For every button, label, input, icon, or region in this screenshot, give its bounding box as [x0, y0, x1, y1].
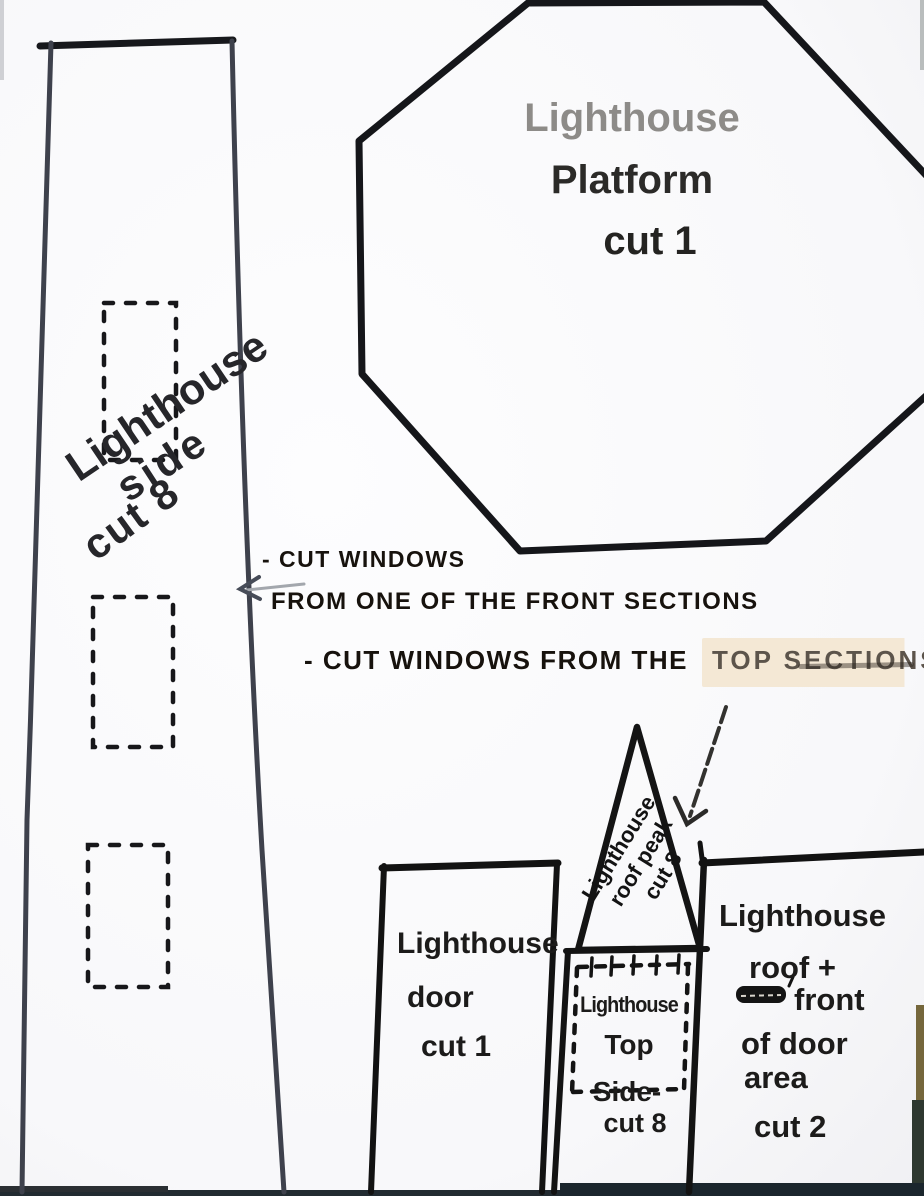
top-side-label-line2: Top [570, 1030, 688, 1061]
roof-front-label-cut-count: cut 2 [754, 1110, 826, 1144]
roof-front-label-line4: of door [741, 1027, 848, 1061]
roof-front-piece-outline [700, 843, 924, 866]
door-label-line2: door [407, 981, 474, 1014]
roof-front-label-line5: area [744, 1061, 808, 1095]
top-side-label-line3: Side- [568, 1077, 686, 1108]
note-cut-windows-top-prefix: - CUT WINDOWS FROM THE [304, 646, 688, 675]
note-cut-windows-top-highlight: TOP SECTIONS [702, 638, 924, 687]
door-label-cut-count: cut 1 [421, 1030, 491, 1063]
pattern-sheet-photo: Lighthouse Platform cut 1 Lighthouse sid… [0, 0, 924, 1196]
note-cut-windows-front-line1: - CUT WINDOWS [262, 547, 465, 572]
door-label-line1: Lighthouse [397, 927, 559, 960]
roof-front-label-line2: roof + [749, 951, 836, 985]
highlighted-text: TOP SECTIONS [712, 645, 924, 675]
top-side-label-cut-count: cut 8 [576, 1109, 694, 1139]
door-piece-outline [371, 863, 558, 1192]
platform-label-line1: Lighthouse [492, 96, 772, 140]
roof-front-label-line1: Lighthouse [719, 899, 886, 933]
platform-label-line2: Platform [492, 158, 772, 202]
lighthouse-side-piece-outline [22, 40, 284, 1192]
window-cutout-3 [88, 845, 168, 987]
platform-label-cut-count: cut 1 [510, 219, 790, 263]
roof-front-label-line3: front [794, 983, 865, 1017]
top-side-label-line1: Lighthouse [576, 993, 682, 1017]
note-cut-windows-top: - CUT WINDOWS FROM THE TOP SECTIONS [304, 646, 924, 675]
note-cut-windows-front-line2: FROM ONE OF THE FRONT SECTIONS [271, 589, 759, 615]
top-side-dashed-box [572, 955, 689, 1093]
platform-octagon-outline [359, 2, 924, 551]
window-cutout-2 [93, 597, 173, 747]
